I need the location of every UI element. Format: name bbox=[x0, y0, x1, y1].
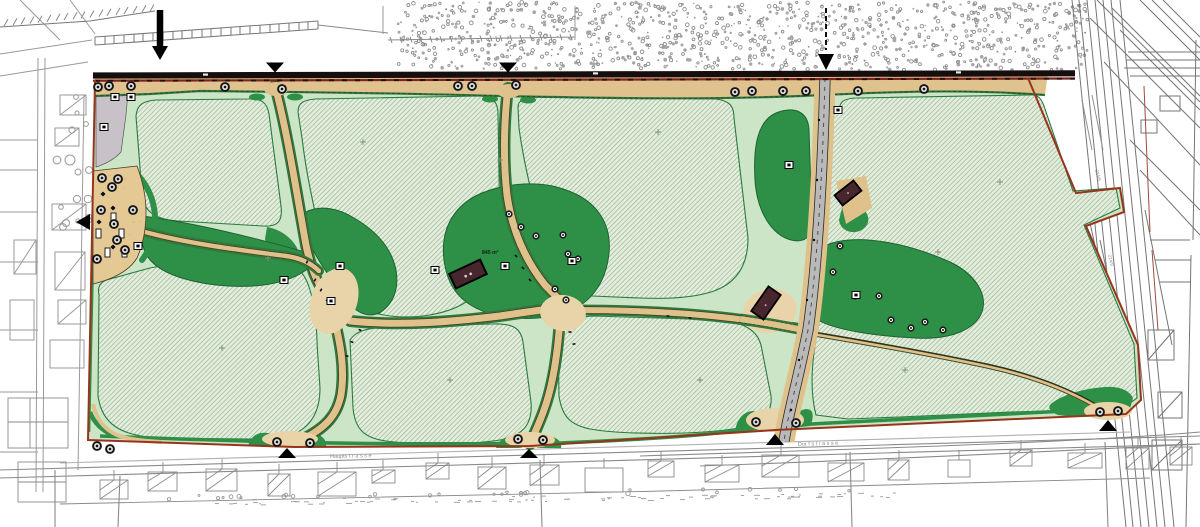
svg-text:845 m²: 845 m² bbox=[482, 250, 499, 256]
svg-text:Haupts t r a s s e: Haupts t r a s s e bbox=[330, 453, 372, 460]
